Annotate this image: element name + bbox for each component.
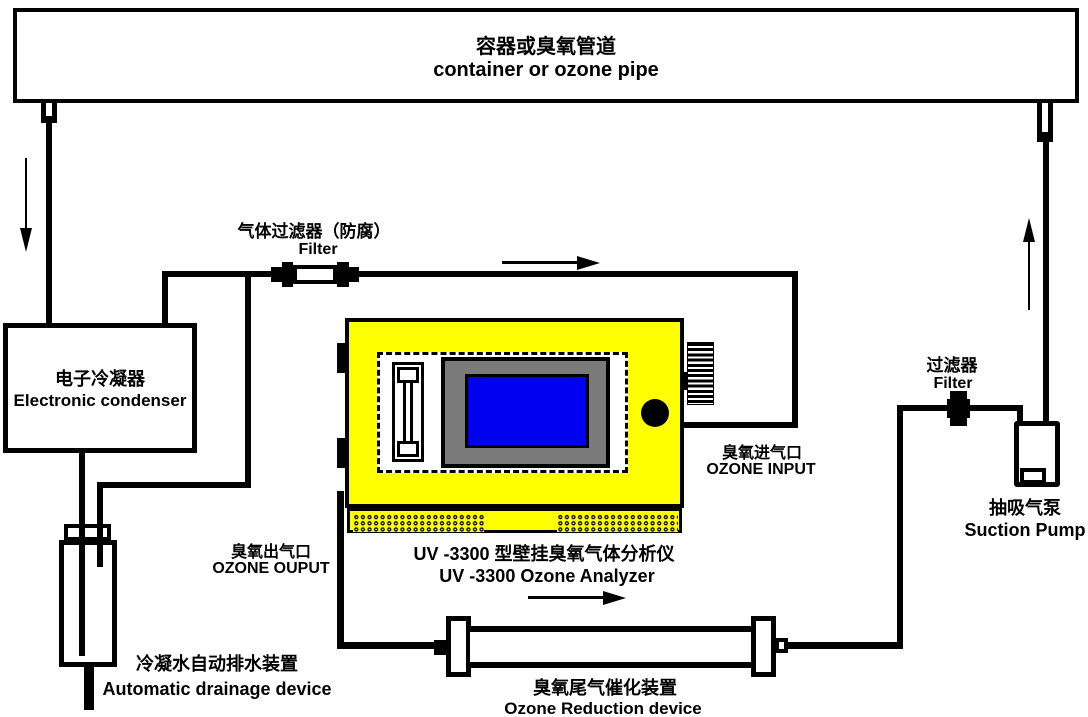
right-filter-label-zh: 过滤器	[927, 357, 978, 375]
gas-filter-label-zh: 气体过滤器（防腐）	[238, 223, 391, 241]
condenser-label-zh: 电子冷凝器	[55, 365, 145, 391]
pipe-riser-to-filter	[897, 405, 903, 649]
drainage-lid	[64, 524, 111, 541]
analyzer-label-en: UV -3300 Ozone Analyzer	[439, 567, 654, 586]
analyzer-mount-tab-top	[337, 343, 346, 373]
flowmeter-top-block	[397, 367, 419, 383]
suction-pump-port	[1020, 468, 1046, 484]
reduction-left-flange	[446, 616, 471, 677]
analyzer-vent-strip	[347, 508, 682, 533]
reduction-right-nipple	[775, 638, 788, 653]
reduction-label-en: Ozone Reduction device	[504, 700, 701, 717]
right-pipe-fitting	[1037, 103, 1053, 142]
ozone-input-label-en: OZONE INPUT	[706, 462, 815, 479]
reduction-right-flange	[751, 616, 776, 677]
pump-label-en: Suction Pump	[965, 521, 1086, 540]
container-pipe-label-en: container or ozone pipe	[433, 59, 659, 82]
pipe-analyzer-output	[337, 491, 344, 649]
analyzer-label-zh: UV -3300 型壁挂臭氧气体分析仪	[413, 545, 674, 564]
pipe-container-to-condenser	[46, 121, 52, 325]
container-pipe-box: 容器或臭氧管道 container or ozone pipe	[13, 8, 1079, 103]
pipe-condenser-to-filter	[162, 271, 272, 277]
gas-filter-label-en: Filter	[298, 242, 337, 259]
ozone-output-label-en: OZONE OUPUT	[212, 561, 329, 578]
drainage-body	[59, 540, 117, 667]
pipe-pump-to-container	[1043, 140, 1049, 427]
condenser-label-en: Electronic condenser	[14, 391, 187, 411]
pipe-condenser-riser	[162, 271, 168, 325]
right-filter-label-en: Filter	[933, 376, 972, 393]
pipe-filter-to-corner	[358, 271, 798, 277]
drainage-label-zh: 冷凝水自动排水装置	[136, 655, 298, 674]
reduction-label-zh: 臭氧尾气催化装置	[533, 679, 677, 698]
pipe-drainage-inlet-right	[97, 482, 103, 567]
container-pipe-label-zh: 容器或臭氧管道	[476, 30, 616, 59]
flowmeter-bottom-block	[397, 441, 419, 457]
electronic-condenser-box: 电子冷凝器 Electronic condenser	[3, 323, 197, 453]
diagram-canvas: 容器或臭氧管道 container or ozone pipe 电子冷凝器 El…	[0, 0, 1088, 717]
left-pipe-fitting	[41, 103, 57, 123]
pipe-input-drop	[792, 271, 798, 428]
analyzer-mount-tab-bottom	[337, 438, 346, 468]
pipe-tee-down	[245, 271, 251, 488]
pump-label-zh: 抽吸气泵	[989, 499, 1061, 518]
reduction-tube	[470, 626, 752, 668]
control-knob	[641, 399, 669, 427]
pipe-into-analyzer	[682, 422, 798, 428]
pipe-reduction-out	[785, 642, 903, 649]
ribbed-fitting-icon	[687, 342, 714, 405]
flowmeter-tube	[403, 382, 413, 443]
display-screen	[465, 374, 589, 448]
pipe-to-drainage-horizontal	[97, 482, 251, 488]
drainage-label-en: Automatic drainage device	[102, 680, 331, 699]
pipe-output-to-reduction	[337, 642, 436, 649]
pipe-condenser-drain	[79, 450, 85, 656]
drainage-outlet-stub	[84, 667, 94, 710]
